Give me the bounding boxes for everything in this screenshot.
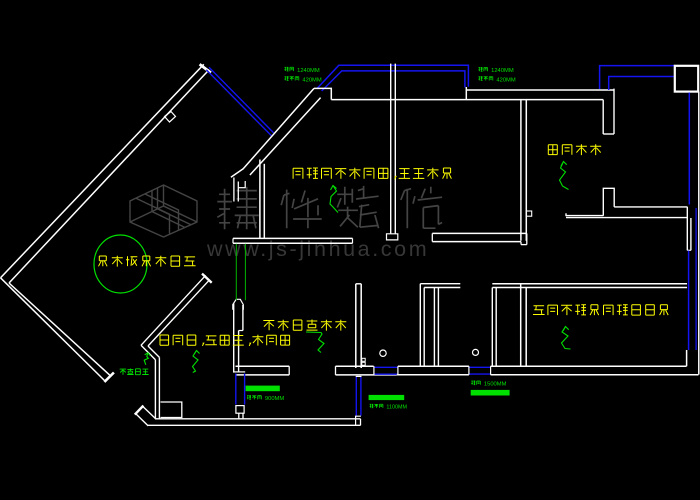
svg-text:www.js-jinhua.com: www.js-jinhua.com [206, 237, 429, 261]
svg-text:1240MM: 1240MM [491, 68, 514, 74]
svg-text:1240MM: 1240MM [297, 68, 320, 74]
svg-text:900MM: 900MM [265, 396, 285, 402]
svg-text:420MM: 420MM [496, 77, 516, 83]
svg-text:1100MM: 1100MM [386, 405, 407, 411]
svg-text:1500MM: 1500MM [484, 382, 507, 388]
svg-text:420MM: 420MM [302, 77, 322, 83]
